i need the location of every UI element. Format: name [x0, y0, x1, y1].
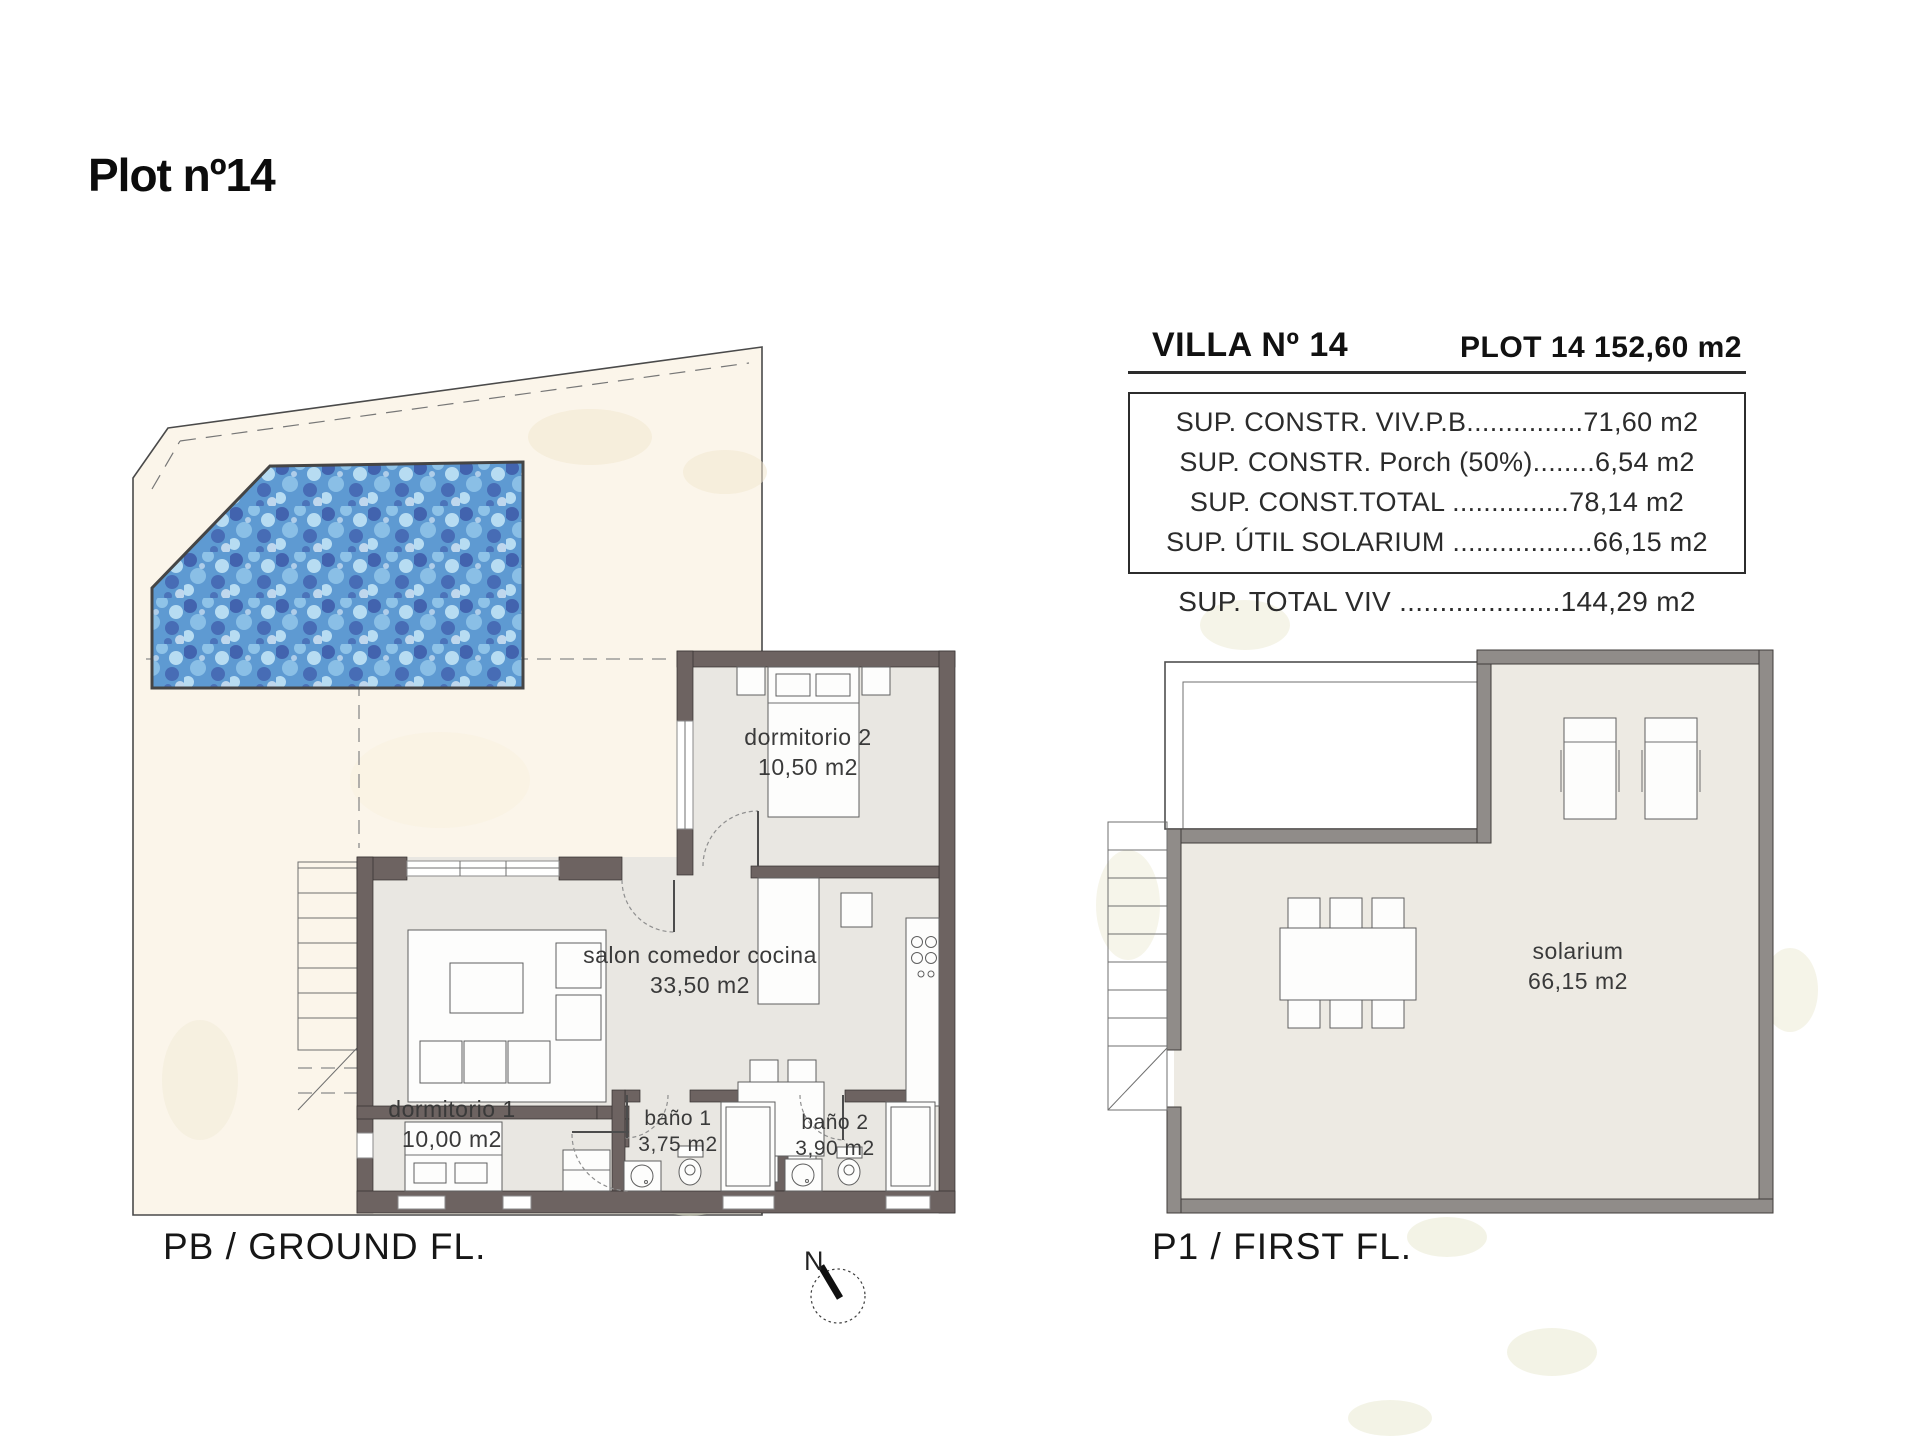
room-label-solarium: solarium 66,15 m2 — [1528, 936, 1628, 996]
table-row: SUP. CONSTR. Porch (50%)........6,54 m2 — [1130, 442, 1744, 482]
table-row: SUP. CONSTR. VIV.P.B...............71,60… — [1130, 402, 1744, 442]
page-title: Plot nº14 — [88, 148, 275, 202]
surface-table: SUP. CONSTR. VIV.P.B...............71,60… — [1128, 392, 1746, 574]
compass-north-label: N — [804, 1246, 824, 1277]
villa-number: VILLA Nº 14 — [1152, 326, 1348, 365]
plot-size: PLOT 14 152,60 m2 — [1460, 331, 1742, 365]
villa-info-panel: VILLA Nº 14 PLOT 14 152,60 m2 SUP. CONST… — [1128, 326, 1746, 618]
room-label-bano2: baño 2 3,90 m2 — [795, 1110, 874, 1162]
room-label-bano1: baño 1 3,75 m2 — [638, 1106, 717, 1158]
table-row: SUP. CONST.TOTAL ...............78,14 m2 — [1130, 482, 1744, 522]
ground-floor-caption: PB / GROUND FL. — [163, 1226, 486, 1268]
sofa-set — [408, 930, 606, 1102]
table-row: SUP. ÚTIL SOLARIUM ..................66,… — [1130, 522, 1744, 562]
void-opening — [1165, 662, 1483, 829]
room-label-dormitorio2: dormitorio 2 10,50 m2 — [744, 722, 871, 782]
dining-table-solarium — [1280, 898, 1416, 1028]
first-floor-plan — [1096, 600, 1818, 1436]
plan-drawing — [0, 0, 1920, 1440]
first-floor-caption: P1 / FIRST FL. — [1152, 1226, 1412, 1268]
room-label-salon: salon comedor cocina 33,50 m2 — [583, 940, 817, 1000]
villa-info-header: VILLA Nº 14 PLOT 14 152,60 m2 — [1128, 326, 1746, 374]
total-surface-row: SUP. TOTAL VIV ....................144,2… — [1128, 586, 1746, 618]
floor-plan-sheet: Plot nº14 VILLA Nº 14 PLOT 14 152,60 m2 … — [0, 0, 1920, 1440]
room-label-dormitorio1: dormitorio 1 10,00 m2 — [388, 1094, 515, 1154]
